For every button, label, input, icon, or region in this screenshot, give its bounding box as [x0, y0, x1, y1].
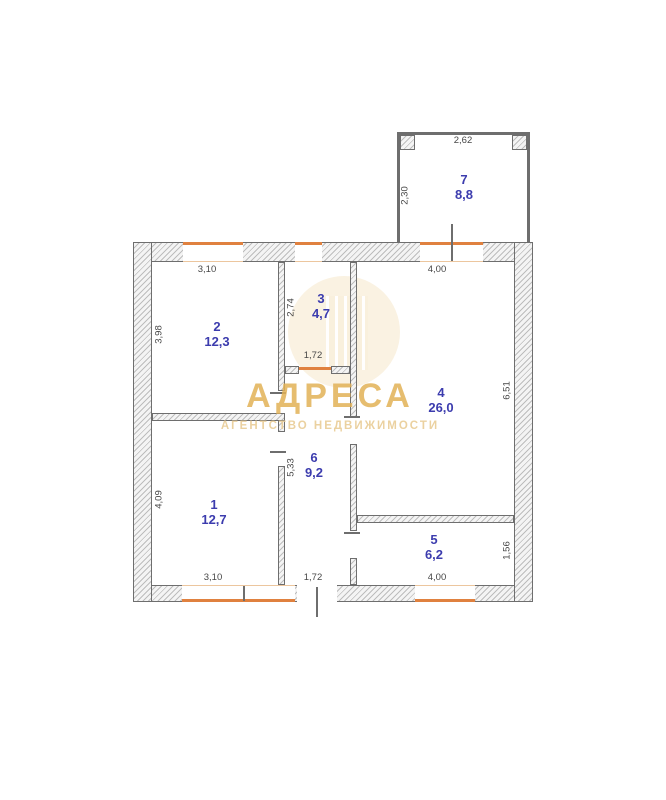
room-2-label: 2 12,3 — [177, 320, 257, 349]
room-2-number: 2 — [213, 320, 220, 334]
room-4-label: 4 26,0 — [401, 386, 481, 415]
tick-door-room4 — [344, 416, 360, 418]
dim-room4-width: 4,00 — [407, 264, 467, 275]
dim-room1-width: 3,10 — [183, 572, 243, 583]
exterior-wall-left — [133, 242, 152, 602]
room-7-area: 8,8 — [455, 188, 473, 202]
window-room3 — [295, 242, 322, 262]
room-7-label: 7 8,8 — [424, 173, 504, 202]
room-6-label: 6 9,2 — [274, 451, 354, 480]
interior-wall-room3-left — [285, 366, 299, 374]
interior-wall-corridor-right-3 — [350, 558, 357, 585]
room-3-number: 3 — [317, 292, 324, 306]
door-room3 — [299, 367, 331, 370]
interior-wall-room4-room5 — [357, 515, 514, 523]
tick-door-room5 — [344, 532, 360, 534]
room-5-number: 5 — [430, 533, 437, 547]
room-3-area: 4,7 — [312, 307, 330, 321]
dim-room7-depth: 2,30 — [400, 166, 411, 226]
room-6-number: 6 — [310, 451, 317, 465]
window-room2 — [183, 242, 243, 262]
interior-wall-corridor-left-3 — [278, 466, 285, 585]
room-5-label: 5 6,2 — [394, 533, 474, 562]
floor-plan: 2,62 2,30 3,10 3,98 2,74 1,72 4,00 6,51 … — [0, 0, 666, 800]
exterior-wall-right — [514, 242, 533, 602]
dim-room5-depth: 1,56 — [502, 521, 513, 581]
interior-wall-corridor-left-1 — [278, 262, 285, 391]
window-room1 — [182, 585, 295, 602]
tick-window-room4 — [451, 224, 453, 261]
dim-room5-width: 4,00 — [407, 572, 467, 583]
interior-wall-room3-right — [331, 366, 350, 374]
tick-window-room1 — [243, 586, 245, 601]
dim-room2-depth: 3,98 — [154, 305, 165, 365]
room-4-number: 4 — [437, 386, 444, 400]
room-7-number: 7 — [460, 173, 467, 187]
annex-column-right — [512, 135, 527, 150]
dim-room6-door: 1,72 — [283, 572, 343, 583]
dim-room3-door: 1,72 — [283, 350, 343, 361]
room-6-area: 9,2 — [305, 466, 323, 480]
dim-room2-width: 3,10 — [177, 264, 237, 275]
annex-wall-right — [527, 132, 530, 242]
room-1-label: 1 12,7 — [174, 498, 254, 527]
dim-room7-width: 2,62 — [433, 135, 493, 146]
room-1-number: 1 — [210, 498, 217, 512]
room-5-area: 6,2 — [425, 548, 443, 562]
dim-room4-depth: 6,51 — [502, 361, 513, 421]
room-2-area: 12,3 — [204, 335, 229, 349]
room-1-area: 12,7 — [201, 513, 226, 527]
window-room5 — [415, 585, 475, 602]
annex-column-left — [400, 135, 415, 150]
tick-entrance-door — [316, 587, 318, 617]
watermark-subtitle: АГЕНТСТВО НЕДВИЖИМОСТИ — [210, 420, 450, 432]
dim-room1-depth: 4,09 — [154, 470, 165, 530]
room-4-area: 26,0 — [428, 401, 453, 415]
room-3-label: 3 4,7 — [281, 292, 361, 321]
